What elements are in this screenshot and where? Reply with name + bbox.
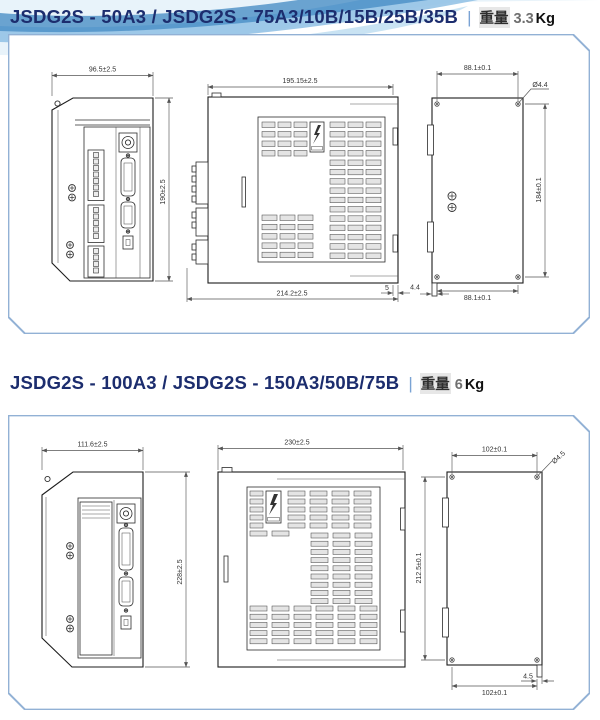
bottom-tab [537,665,542,677]
model-name-1: JSDG2S - 50A3 / JSDG2S - 75A3/10B/15B/25… [10,6,458,28]
svg-text:228±2.5: 228±2.5 [177,559,184,584]
front-width-dimension: 111.6±2.5 [42,442,143,471]
back-top-dimension: 88.1±0.1 [437,65,518,101]
hook-tab [428,125,434,155]
hook-tab [443,498,449,527]
side-view-1: 195.15±2.5 214.2±2.5 5 [187,78,410,302]
mount-hole-icon [535,658,539,662]
screw-icon [67,543,74,550]
svg-text:190±2.5: 190±2.5 [160,179,167,204]
mount-hole-icon [45,476,50,481]
mount-hole-icon [450,475,454,479]
screw-icon [67,242,74,249]
section-2-title: JSDG2S - 100A3 / JSDG2S - 150A3/50B/75B … [10,372,484,394]
back-bottom-dimension: 88.1±0.1 [437,285,518,302]
side-connector-bumps [192,162,208,264]
screw-icon [67,625,74,632]
panel-screw-icon [126,197,129,200]
drawing-panel-1: 96.5±2.5 190±2.5 [8,34,590,334]
screw-icon [448,192,456,200]
mount-hole-icon [450,658,454,662]
mount-slot [393,235,398,252]
svg-text:4.5: 4.5 [523,674,533,681]
front-width-dimension: 96.5±2.5 [52,67,153,97]
svg-text:111.6±2.5: 111.6±2.5 [77,442,107,449]
back-height-dimension: 184±0.1 [525,104,549,277]
bottom-tab [432,283,437,296]
svg-text:5: 5 [385,285,389,292]
back-tab-dimension: 4.4 [410,285,449,295]
panel-screw-icon [126,154,129,157]
svg-text:195.15±2.5: 195.15±2.5 [283,78,318,85]
vent-slots [311,533,372,604]
screw-icon [69,185,76,192]
side-top-dimension: 230±2.5 [218,440,403,471]
panel-screw-icon [124,609,127,612]
weight-label-1: 重量 [479,7,510,28]
terminal-block-1 [88,150,104,201]
hook-tab [428,222,434,252]
side-top-dimension: 195.15±2.5 [208,78,393,95]
svg-text:Ø4.5: Ø4.5 [551,450,567,465]
mount-hole-icon [55,101,60,106]
weight-value-2: 6 [451,377,463,393]
svg-text:214.2±2.5: 214.2±2.5 [276,291,307,298]
weight-value-1: 3.3 [510,11,534,27]
svg-text:Ø4.4: Ø4.4 [532,82,547,89]
svg-text:102±0.1: 102±0.1 [482,447,507,454]
front-view-1: 96.5±2.5 190±2.5 [52,67,173,282]
mount-slot [401,508,406,530]
screw-icon [67,616,74,623]
panel-screw-icon [124,523,127,526]
back-top-dimension: 102±0.1 [452,447,537,475]
weight-unit-2: Kg [463,377,484,393]
title-separator-2: | [399,374,419,394]
front-height-dimension: 228±2.5 [145,472,190,667]
svg-text:184±0.1: 184±0.1 [536,177,543,202]
screw-icon [69,194,76,201]
svg-text:4.4: 4.4 [410,285,420,292]
back-view-1: 88.1±0.1 Ø4.4 184±0.1 88.1±0.1 [410,65,549,302]
screw-icon [448,204,456,212]
mount-hole-icon [435,102,439,106]
mount-hole-icon [516,275,520,279]
vent-slots [330,160,381,259]
drawing-1: 96.5±2.5 190±2.5 [8,34,590,334]
mount-hole-icon [435,275,439,279]
svg-text:96.5±2.5: 96.5±2.5 [89,67,116,74]
title-separator-1: | [458,8,478,28]
drawing-panel-2: 111.6±2.5 228±2.5 [8,415,590,710]
hook-tab [443,608,449,637]
section-1-title: JSDG2S - 50A3 / JSDG2S - 75A3/10B/15B/25… [10,6,555,28]
svg-text:88.1±0.1: 88.1±0.1 [464,65,491,72]
weight-label-2: 重量 [420,373,451,394]
catalog-page: { "accent": { "title_color": "#1c2d6e", … [0,0,600,720]
screw-icon [67,552,74,559]
handle-slot [242,177,246,207]
back-view-2: 102±0.1 Ø4.5 212.5±0.1 102±0.1 [416,447,567,698]
terminal-block-2 [88,205,104,243]
mount-hole-icon [535,475,539,479]
svg-text:88.1±0.1: 88.1±0.1 [464,295,491,302]
panel-screw-icon [124,572,127,575]
weight-unit-1: Kg [534,11,555,27]
front-height-dimension: 190±2.5 [155,98,173,281]
svg-text:212.5±0.1: 212.5±0.1 [416,552,423,583]
back-height-dimension: 212.5±0.1 [416,477,445,660]
mount-slot [401,610,406,632]
svg-text:102±0.1: 102±0.1 [482,690,507,697]
front-view-2: 111.6±2.5 228±2.5 [42,442,190,668]
side-flange-dimension: 5 [381,285,410,296]
drawing-2: 111.6±2.5 228±2.5 [8,415,590,710]
back-bottom-dimension: 102±0.1 [452,667,537,697]
mount-hole-icon [516,102,520,106]
mount-slot [393,128,398,145]
svg-text:230±2.5: 230±2.5 [284,440,309,447]
panel-screw-icon [126,230,129,233]
side-view-2: 230±2.5 [218,440,405,668]
screw-icon [67,251,74,258]
terminal-block-3 [88,246,104,277]
model-name-2: JSDG2S - 100A3 / JSDG2S - 150A3/50B/75B [10,372,399,394]
handle-slot [224,556,228,582]
